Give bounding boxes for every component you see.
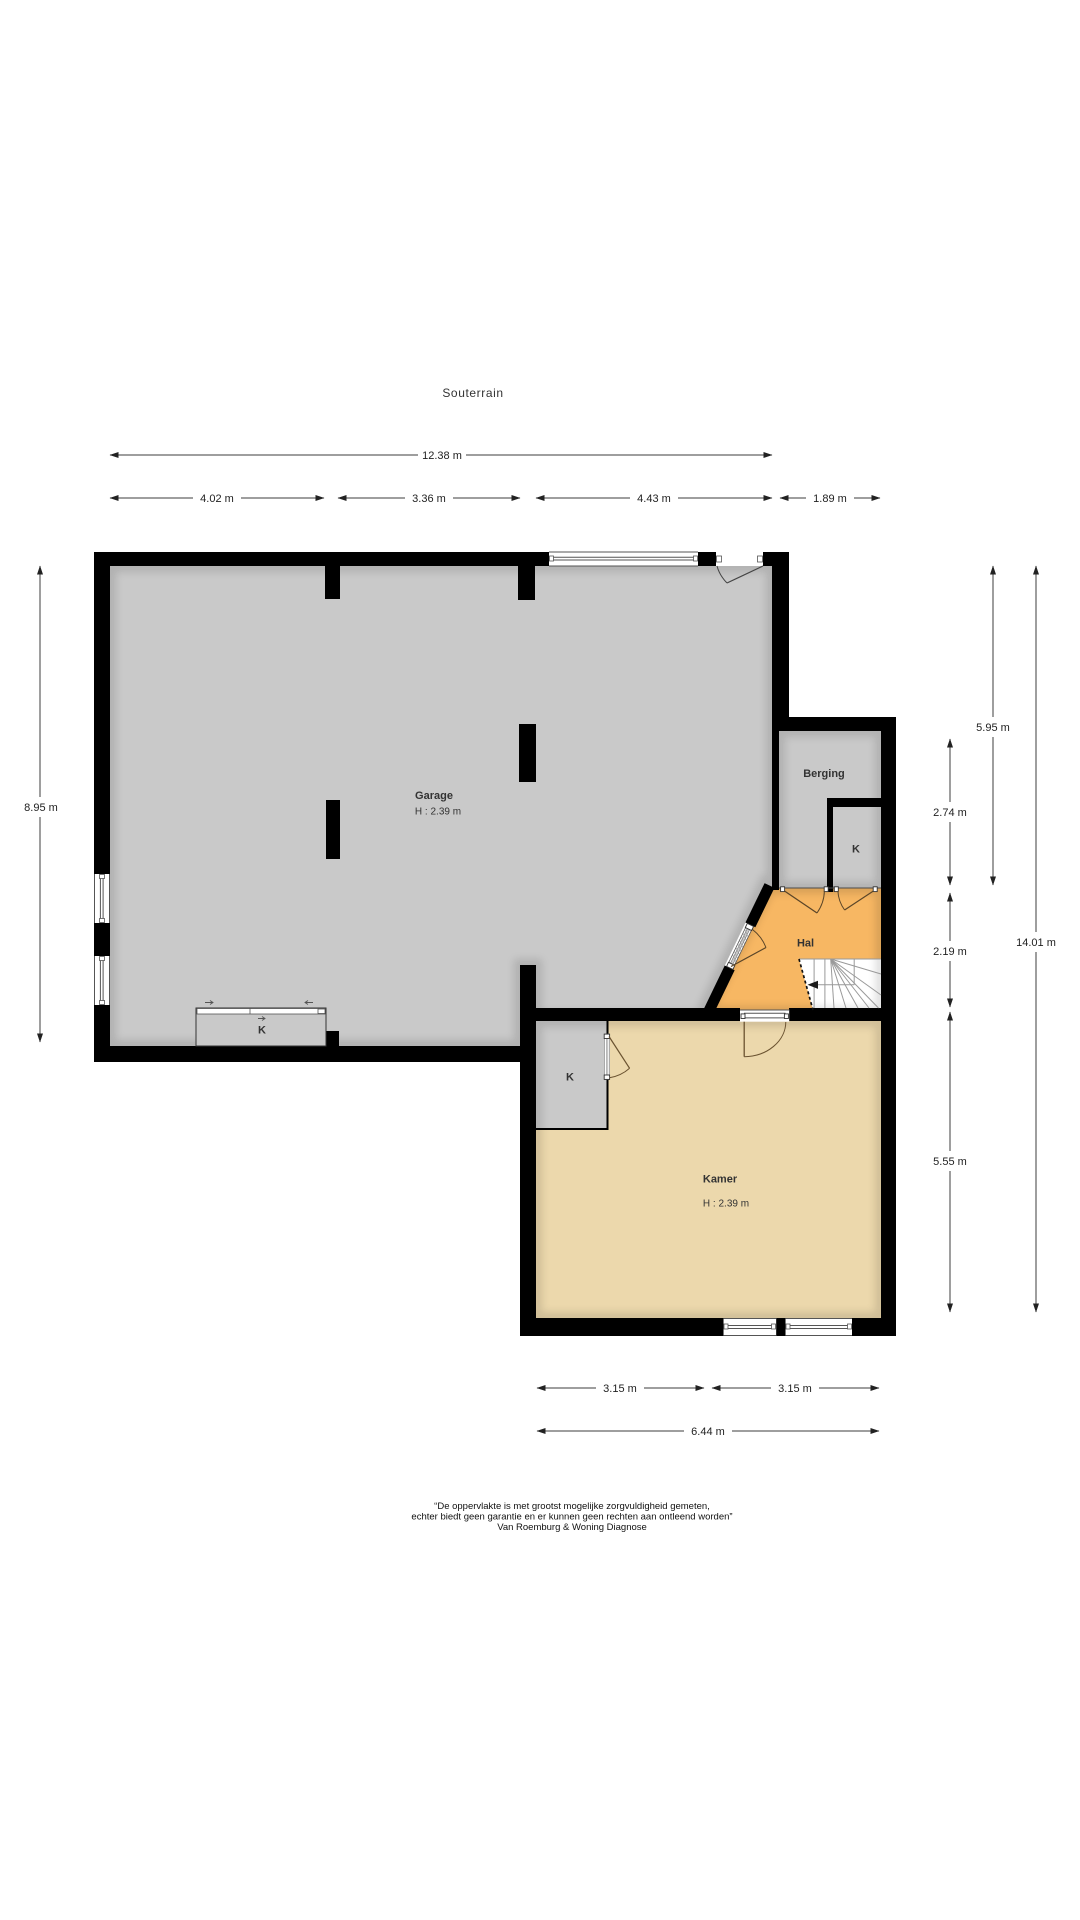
svg-text:H : 2.39 m: H : 2.39 m [415,807,461,818]
svg-text:2.74 m: 2.74 m [933,807,967,819]
svg-text:Hal: Hal [797,938,814,950]
svg-text:3.36 m: 3.36 m [412,493,446,505]
svg-text:3.15 m: 3.15 m [778,1383,812,1395]
svg-text:2.19 m: 2.19 m [933,946,967,958]
svg-text:14.01 m: 14.01 m [1016,937,1056,949]
svg-text:“De oppervlakte is met grootst: “De oppervlakte is met grootst mogelijke… [434,1501,710,1512]
svg-text:Van Roemburg & Woning Diagnose: Van Roemburg & Woning Diagnose [497,1522,647,1533]
svg-text:echter biedt geen garantie en: echter biedt geen garantie en er kunnen … [411,1512,732,1523]
svg-text:3.15 m: 3.15 m [603,1383,637,1395]
svg-text:K: K [566,1072,574,1084]
svg-text:6.44 m: 6.44 m [691,1426,725,1438]
svg-text:H : 2.39 m: H : 2.39 m [703,1199,749,1210]
svg-text:K: K [258,1025,266,1037]
svg-text:Berging: Berging [803,768,845,780]
svg-text:4.43 m: 4.43 m [637,493,671,505]
svg-text:4.02 m: 4.02 m [200,493,234,505]
svg-text:12.38 m: 12.38 m [422,450,462,462]
svg-text:Souterrain: Souterrain [442,386,503,400]
svg-text:K: K [852,844,860,856]
svg-text:5.95 m: 5.95 m [976,722,1010,734]
svg-text:Kamer: Kamer [703,1174,738,1186]
svg-text:1.89 m: 1.89 m [813,493,847,505]
svg-text:8.95 m: 8.95 m [24,802,58,814]
svg-text:Garage: Garage [415,790,453,802]
svg-text:5.55 m: 5.55 m [933,1156,967,1168]
